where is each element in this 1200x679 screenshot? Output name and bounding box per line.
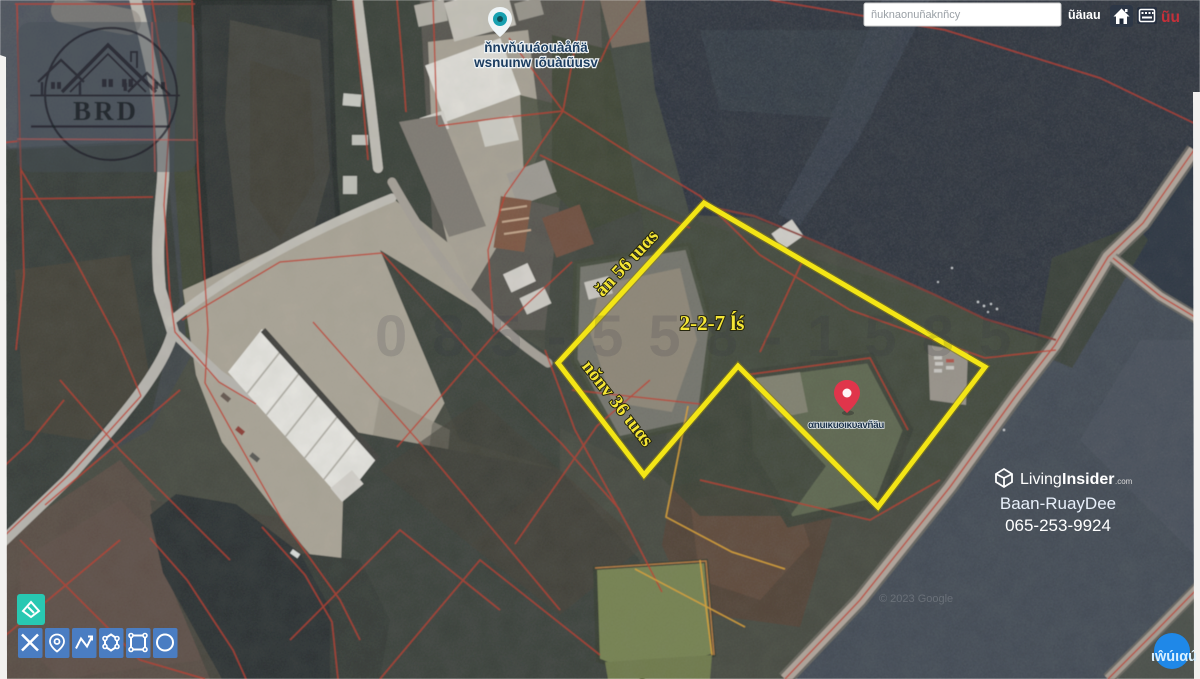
svg-text:.com: .com [1115, 477, 1133, 486]
svg-text:© 2023 Google: © 2023 Google [879, 593, 953, 605]
svg-text:wsnuιnw ιõuàιũusv: wsnuιnw ιõuàιũusv [473, 55, 598, 70]
svg-text:αnuικuoικυavñäu: αnuικuoικυavñäu [808, 420, 884, 431]
svg-text:ňnvňúuáouàåñä: ňnvňúuáouàåñä [484, 40, 588, 55]
svg-text:BRD: BRD [73, 96, 139, 126]
svg-text:Baan-RuayDee: Baan-RuayDee [1000, 494, 1116, 513]
svg-text:065-253-9924: 065-253-9924 [1005, 516, 1111, 535]
svg-text:Living: Living [1020, 471, 1062, 488]
svg-text:ũäιau: ũäιau [1068, 8, 1101, 22]
svg-text:ñuknaonuñaknñcy: ñuknaonuñaknñcy [871, 9, 961, 21]
svg-text:ιŵúιαú: ιŵúιαú [1151, 649, 1197, 665]
svg-text:ũu: ũu [1161, 9, 1180, 26]
svg-text:2-2-7 ĺś: 2-2-7 ĺś [680, 311, 745, 335]
svg-text:Insider: Insider [1062, 471, 1114, 488]
